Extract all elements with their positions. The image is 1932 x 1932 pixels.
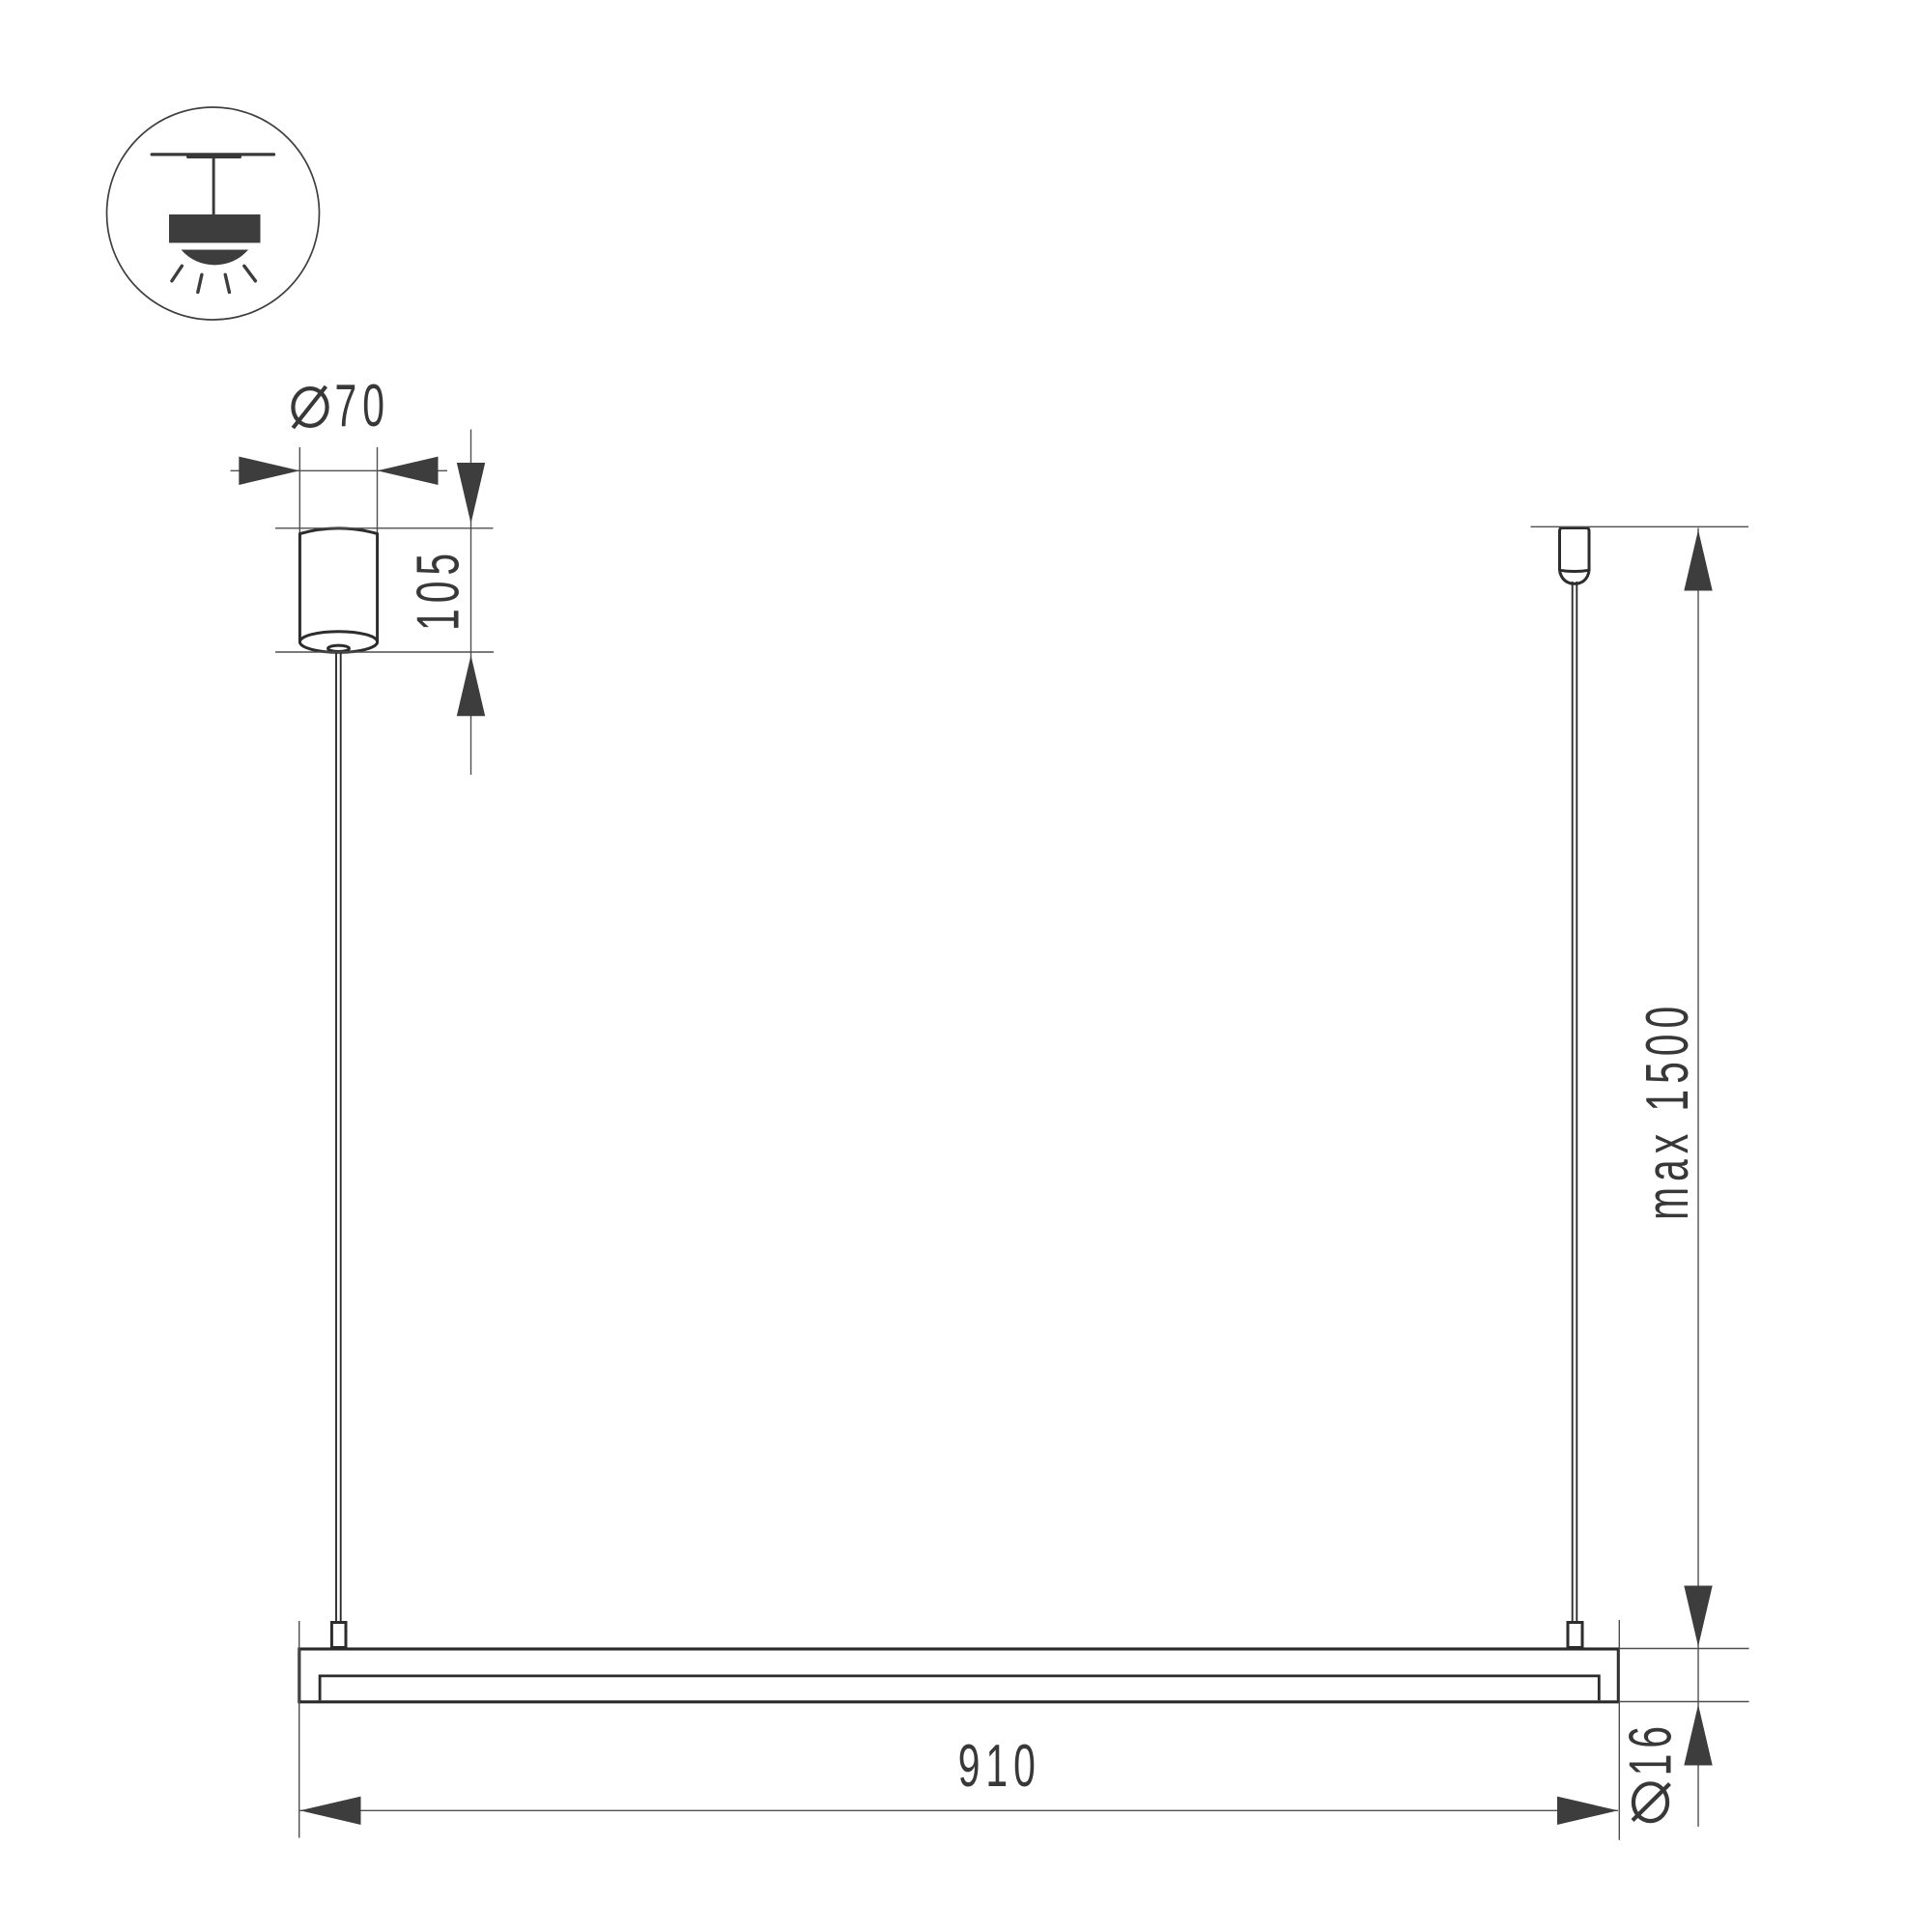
- svg-text:max 1500: max 1500: [1634, 1001, 1702, 1220]
- svg-text:70: 70: [335, 373, 390, 440]
- svg-text:910: 910: [958, 1733, 1041, 1801]
- svg-text:105: 105: [405, 548, 472, 631]
- svg-text:16: 16: [1617, 1720, 1685, 1776]
